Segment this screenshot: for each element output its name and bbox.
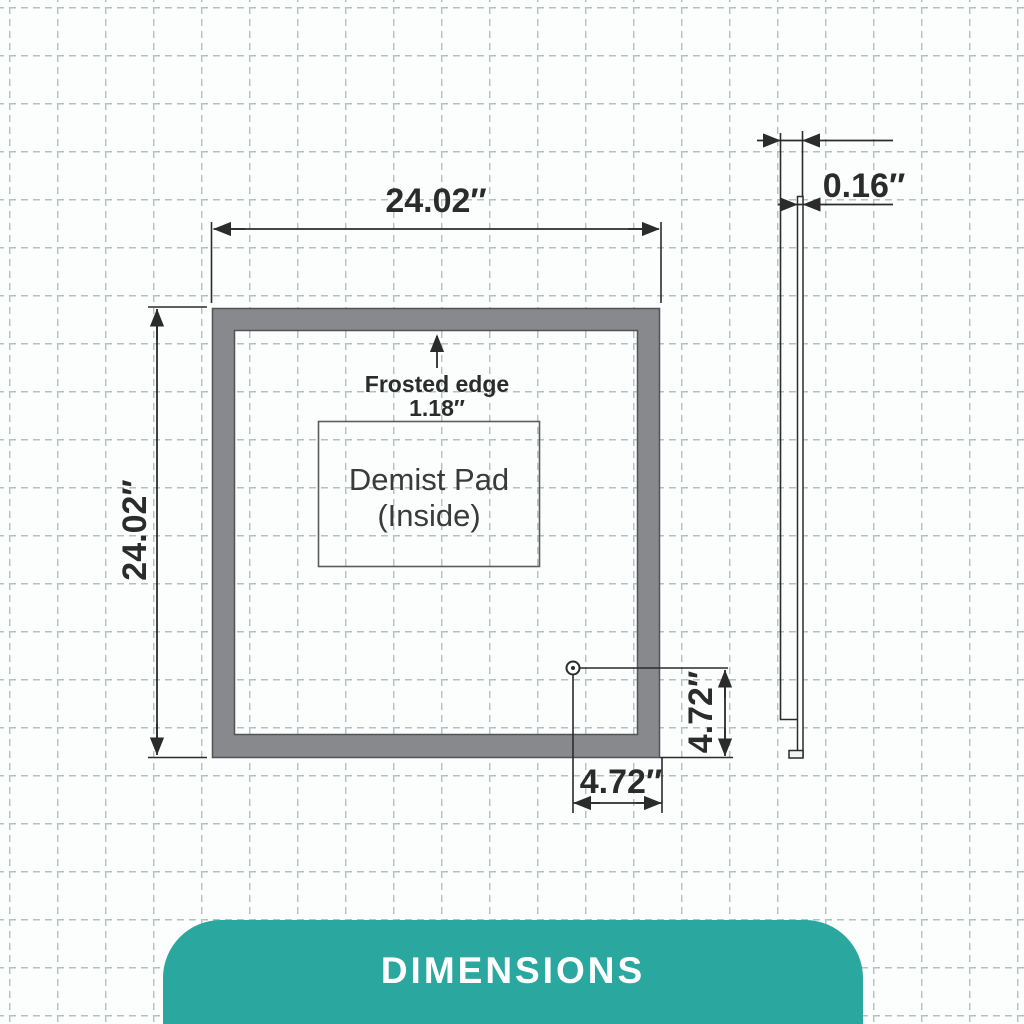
banner-title: DIMENSIONS <box>381 950 645 991</box>
demist-pad-label-line1: Demist Pad <box>349 462 509 497</box>
side-view-bottom-lip <box>789 751 803 759</box>
sensor-offset-vertical-label: 4.72″ <box>682 671 720 753</box>
dimension-diagram-page: 24.02″ 24.02″ Frosted edge 1.18″ Demist <box>0 0 1024 1024</box>
width-dimension-label: 24.02″ <box>385 182 486 220</box>
height-dimension-label: 24.02″ <box>116 479 154 580</box>
sensor-offset-horizontal-label: 4.72″ <box>580 763 662 801</box>
dimension-diagram-canvas: 24.02″ 24.02″ Frosted edge 1.18″ Demist <box>0 0 1024 1024</box>
touch-sensor-center <box>571 666 575 670</box>
side-view-glass <box>798 197 804 757</box>
thickness-dimension-label: 0.16″ <box>823 167 905 205</box>
dimensions-banner: DIMENSIONS <box>163 920 863 1024</box>
frosted-edge-label: Frosted edge <box>365 371 509 397</box>
demist-pad-label-line2: (Inside) <box>377 498 480 533</box>
frosted-edge-value: 1.18″ <box>409 395 465 421</box>
